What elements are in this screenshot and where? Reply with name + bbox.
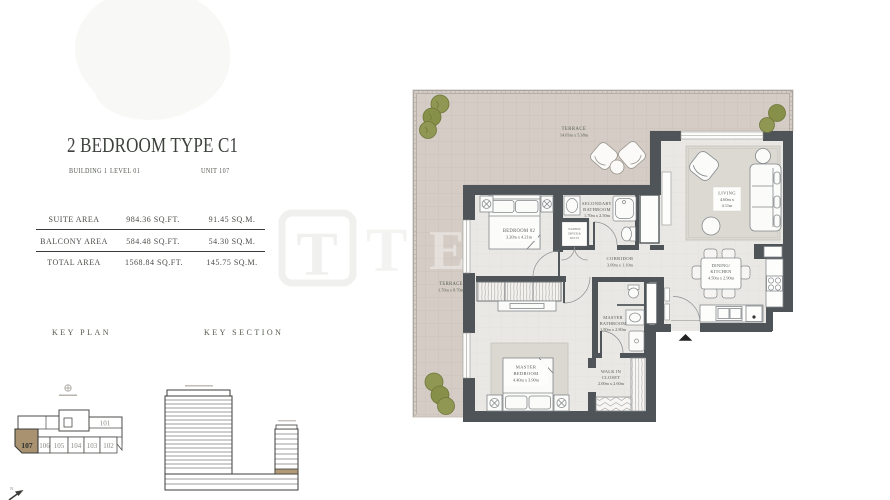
svg-text:T: T (366, 217, 407, 285)
svg-text:1.90m x 2.80m: 1.90m x 2.80m (600, 327, 627, 332)
svg-text:T: T (296, 221, 337, 289)
svg-text:DRYER &: DRYER & (568, 232, 581, 236)
svg-text:3.09m x 1.10m: 3.09m x 1.10m (607, 263, 634, 268)
svg-text:1.70m x 2.50m: 1.70m x 2.50m (584, 213, 611, 218)
svg-text:BATHROOM: BATHROOM (583, 207, 611, 212)
svg-text:105: 105 (54, 442, 65, 450)
svg-text:14.03m x 5.38m: 14.03m x 5.38m (560, 133, 589, 138)
svg-text:3.20m x 4.21m: 3.20m x 4.21m (506, 235, 533, 240)
svg-text:104: 104 (71, 442, 82, 450)
svg-text:MASTER: MASTER (603, 315, 622, 320)
svg-text:WASHER/: WASHER/ (568, 227, 581, 231)
svg-text:101: 101 (100, 420, 111, 428)
svg-text:BATHROOM: BATHROOM (600, 321, 627, 326)
svg-text:WALK IN: WALK IN (601, 369, 622, 374)
svg-text:4.11m: 4.11m (722, 203, 733, 208)
svg-text:4.50m x 2.90m: 4.50m x 2.90m (708, 276, 735, 281)
svg-text:KITCHEN: KITCHEN (710, 269, 732, 274)
svg-text:BEDROOM 02: BEDROOM 02 (503, 229, 536, 234)
svg-text:2.00m x 2.60m: 2.00m x 2.60m (598, 381, 625, 386)
svg-text:4.40m x 3.90m: 4.40m x 3.90m (513, 378, 540, 383)
svg-text:CORRIDOR: CORRIDOR (607, 256, 634, 261)
svg-text:102: 102 (103, 442, 114, 450)
svg-text:DUCTS: DUCTS (570, 236, 580, 240)
svg-text:103: 103 (87, 442, 98, 450)
svg-text:TERRACE: TERRACE (562, 127, 587, 132)
svg-text:LIVING: LIVING (718, 191, 736, 196)
svg-text:4.60m x: 4.60m x (720, 197, 735, 202)
svg-text:BEDROOM: BEDROOM (513, 371, 538, 376)
svg-text:N: N (10, 486, 14, 491)
svg-text:MASTER: MASTER (516, 365, 537, 370)
svg-text:107: 107 (21, 441, 33, 450)
svg-text:106: 106 (39, 442, 50, 450)
svg-text:SECONDARY: SECONDARY (582, 201, 612, 206)
svg-text:CLOSET: CLOSET (602, 375, 620, 380)
svg-text:DINING/: DINING/ (712, 263, 731, 268)
